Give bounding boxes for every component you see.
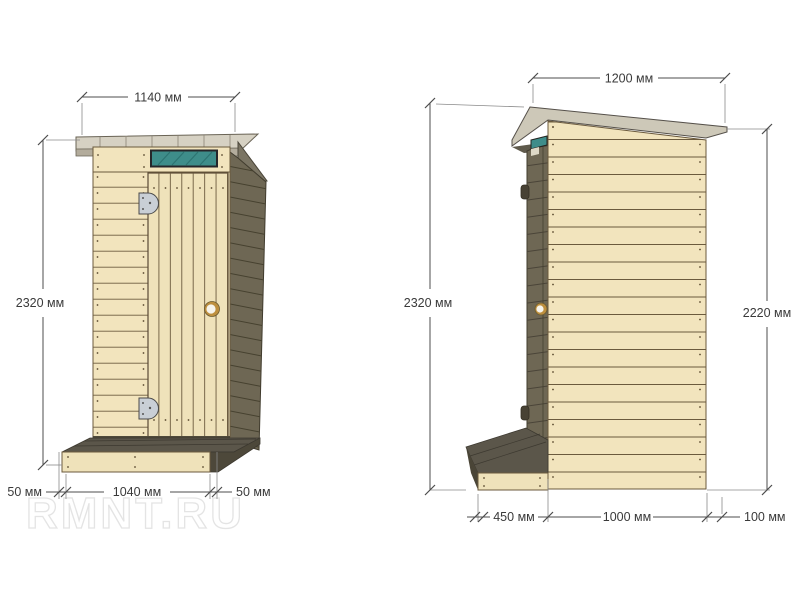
front-roof-width-label: 1140 мм — [134, 91, 182, 105]
side-platform-face — [478, 473, 548, 490]
front-view: 1140 мм 2320 мм 50 мм 1040 мм 50 м — [7, 91, 270, 500]
front-platform-face — [62, 452, 210, 472]
blueprint-canvas: RMNT.RU — [0, 0, 800, 600]
front-bottom-left-label: 50 мм — [7, 485, 42, 499]
side-wall-planks — [548, 121, 706, 489]
dim-front-roof-width: 1140 мм — [77, 91, 240, 136]
side-view: 1200 мм 2320 мм 2220 мм — [404, 72, 791, 525]
side-cabin-depth-label: 1000 мм — [603, 510, 651, 524]
side-height-back-label: 2220 мм — [743, 306, 791, 320]
side-roof-width-label: 1200 мм — [605, 72, 653, 86]
side-door-knob — [535, 303, 547, 315]
outhouse-blueprint: RMNT.RU — [0, 0, 800, 600]
transom-window — [151, 151, 217, 167]
side-hinge-bottom — [521, 406, 529, 420]
front-height-label: 2320 мм — [16, 296, 64, 310]
side-platform-top — [466, 428, 548, 473]
side-hinge-top — [521, 185, 529, 199]
dim-front-height: 2320 мм — [16, 135, 80, 470]
side-step-depth-label: 450 мм — [493, 510, 535, 524]
side-roof-overhang-label: 100 мм — [744, 510, 786, 524]
door-knob — [205, 302, 220, 317]
dim-side-height-back: 2220 мм — [707, 124, 791, 495]
front-bottom-right-label: 50 мм — [236, 485, 271, 499]
side-wall-top-nail — [552, 126, 554, 128]
door-hinge-bottom — [139, 398, 159, 419]
front-platform-width-label: 1040 мм — [113, 485, 161, 499]
door-hinge-top — [139, 193, 159, 214]
side-height-front-label: 2320 мм — [404, 296, 452, 310]
